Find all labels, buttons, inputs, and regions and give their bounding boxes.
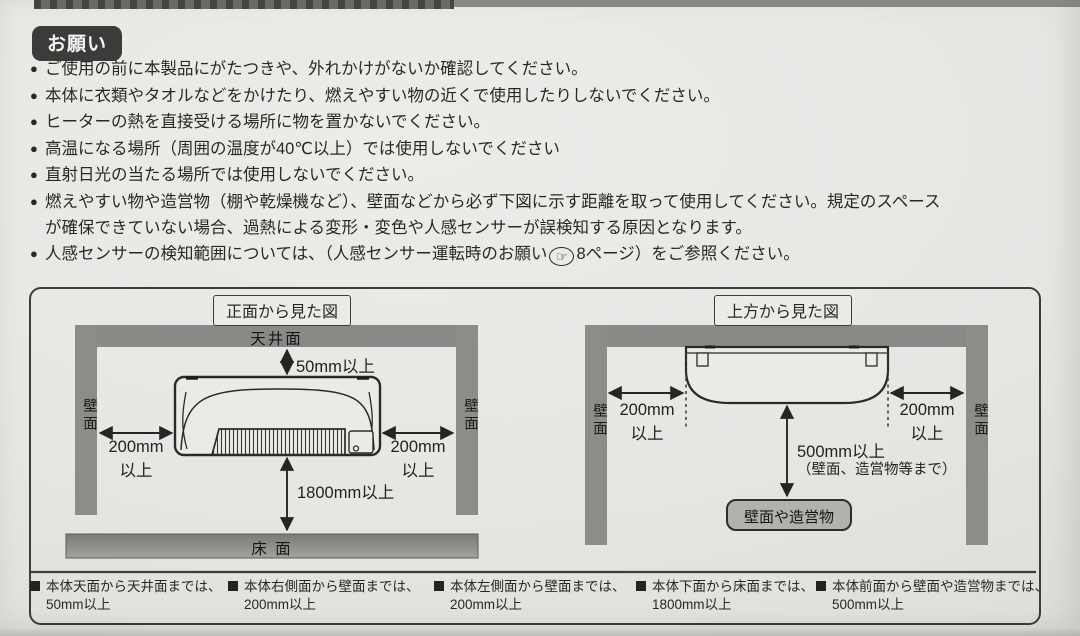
legend-item: 本体前面から壁面や造営物までは、 500mm以上 (816, 578, 1048, 614)
note-text-continuation: が確保できていない場合、過熱による変形・変色や人感センサーが誤検知する原因となり… (45, 216, 1070, 242)
left-clearance-value: 200mm (98, 438, 174, 457)
note-item: ●燃えやすい物や造営物（棚や乾燥機など）、壁面などから必ず下図に示す距離を取って… (30, 189, 1070, 241)
legend-value: 200mm以上 (450, 596, 626, 614)
note-text: 高温になる場所（周囲の温度が40℃以上）では使用しないでください (45, 140, 560, 158)
photo-bottom-shadow (0, 628, 1080, 636)
hand-pointer-icon: ☞ (549, 247, 574, 266)
legend-item: 本体天面から天井面までは、 50mm以上 (30, 578, 222, 614)
bullet-icon: ● (30, 241, 45, 267)
legend-square-icon (816, 581, 826, 591)
bottom-clearance-label: 1800mm以上 (297, 479, 394, 503)
hand-pointer-glyph: ☞ (556, 250, 568, 263)
note-item: ●本体に衣類やタオルなどをかけたり、燃えやすい物の近くで使用したりしないでくださ… (30, 83, 1070, 110)
bullet-icon: ● (30, 56, 45, 82)
note-text-page-ref: 8ページ）をご参照ください。 (576, 245, 799, 263)
legend-value: 200mm以上 (244, 596, 420, 614)
wall-label-right: 壁面 (460, 398, 481, 433)
top-view-title: 上方から見た図 (714, 295, 852, 326)
legend-label: 本体下面から床面までは、 (652, 579, 814, 594)
legend-value: 500mm以上 (832, 596, 1048, 614)
obstacle-label: 壁面や造営物 (727, 506, 851, 527)
legend-square-icon (636, 581, 646, 591)
legend-label: 本体天面から天井面までは、 (46, 579, 222, 594)
note-text: 人感センサーの検知範囲については、（人感センサー運転時のお願い (45, 245, 547, 263)
bullet-icon: ● (30, 189, 45, 215)
legend-square-icon (30, 581, 40, 591)
note-text: 本体に衣類やタオルなどをかけたり、燃えやすい物の近くで使用したりしないでください… (45, 87, 720, 105)
previous-section-strip-dark (34, 0, 454, 9)
bullet-icon: ● (30, 162, 45, 188)
top-clearance-label: 50mm以上 (296, 353, 375, 377)
note-text: 直射日光の当たる場所では使用しないでください。 (45, 166, 424, 184)
notes-list: ●ご使用の前に本製品にがたつきや、外れかけがないか確認してください。 ●本体に衣… (30, 56, 1070, 268)
front-view-title: 正面から見た図 (213, 295, 351, 326)
top-view-left-clearance-unit: 以上 (608, 420, 686, 444)
top-view-wall-label-left: 壁面 (589, 403, 610, 438)
wall-label-left: 壁面 (79, 398, 100, 433)
note-item: ●直射日光の当たる場所では使用しないでください。 (30, 162, 1070, 189)
top-view-right-clearance-unit: 以上 (888, 420, 966, 444)
bullet-icon: ● (30, 136, 45, 162)
legend-label: 本体左側面から壁面までは、 (450, 579, 626, 594)
legend-item: 本体下面から床面までは、 1800mm以上 (636, 578, 814, 614)
right-clearance-unit: 以上 (381, 457, 455, 481)
note-item: ●高温になる場所（周囲の温度が40℃以上）では使用しないでください (30, 136, 1070, 163)
note-item: ●ご使用の前に本製品にがたつきや、外れかけがないか確認してください。 (30, 56, 1070, 83)
top-view-right-clearance-value: 200mm (888, 401, 966, 420)
legend-square-icon (434, 581, 444, 591)
note-text: ご使用の前に本製品にがたつきや、外れかけがないか確認してください。 (45, 60, 588, 78)
right-clearance-value: 200mm (381, 438, 455, 457)
legend-value: 1800mm以上 (652, 596, 814, 614)
ceiling-label: 天井面 (75, 327, 478, 349)
floor-label: 床 面 (66, 537, 478, 559)
bullet-icon: ● (30, 83, 45, 109)
top-view-left-clearance-label: 200mm 以上 (608, 401, 686, 444)
legend-label: 本体右側面から壁面までは、 (244, 579, 420, 594)
top-view-wall-label-right: 壁面 (970, 403, 991, 438)
bullet-icon: ● (30, 109, 45, 135)
manual-page: お願い ●ご使用の前に本製品にがたつきや、外れかけがないか確認してください。 ●… (0, 0, 1080, 636)
legend-square-icon (228, 581, 238, 591)
note-item: ●ヒーターの熱を直接受ける場所に物を置かないでください。 (30, 109, 1070, 136)
legend-label: 本体前面から壁面や造営物までは、 (832, 579, 1048, 594)
note-text: ヒーターの熱を直接受ける場所に物を置かないでください。 (45, 113, 490, 131)
note-item-sensor: ●人感センサーの検知範囲については、（人感センサー運転時のお願い☞8ページ）をご… (30, 241, 1070, 268)
legend-item: 本体右側面から壁面までは、 200mm以上 (228, 578, 420, 614)
left-clearance-label: 200mm 以上 (98, 438, 174, 481)
front-clearance-note: （壁面、造営物等まで） (797, 458, 957, 479)
legend-item: 本体左側面から壁面までは、 200mm以上 (434, 578, 626, 614)
top-view-right-clearance-label: 200mm 以上 (888, 401, 966, 444)
note-text: 燃えやすい物や造営物（棚や乾燥機など）、壁面などから必ず下図に示す距離を取って使… (45, 193, 940, 211)
right-clearance-label: 200mm 以上 (381, 438, 455, 481)
legend-value: 50mm以上 (46, 596, 222, 614)
top-view-left-clearance-value: 200mm (608, 401, 686, 420)
left-clearance-unit: 以上 (98, 457, 174, 481)
